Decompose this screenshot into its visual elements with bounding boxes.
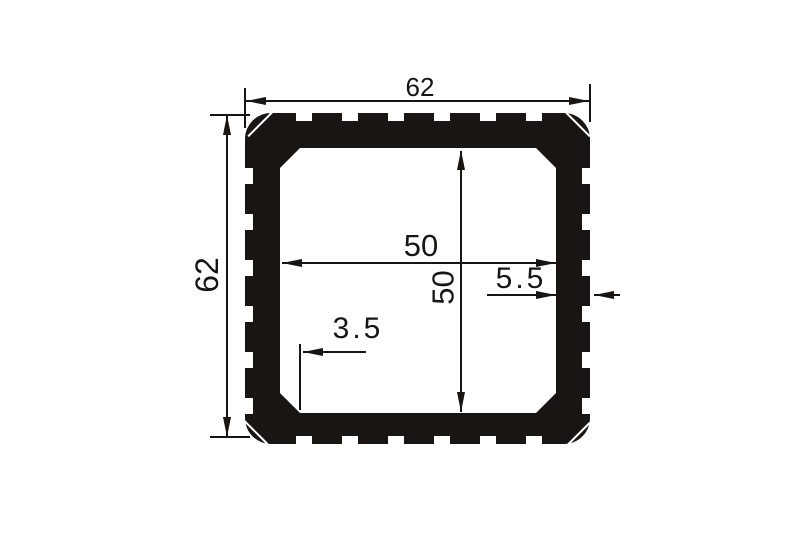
arrow-left-icon	[594, 291, 614, 299]
dim-outer-height-label: 62	[191, 249, 223, 301]
ext-line-top-left	[244, 88, 246, 128]
drawing-canvas: 62 62 50 50 5.5 3.5	[0, 0, 800, 540]
dim-inner-width-label: 50	[390, 230, 452, 261]
arrow-right-icon	[536, 291, 556, 299]
arrow-down-icon	[223, 417, 231, 437]
dim-wall-thickness-label: 5.5	[486, 264, 556, 294]
ext-line-top-right	[589, 84, 591, 122]
dim-outer-width-label: 62	[390, 74, 450, 100]
arrow-up-icon	[457, 150, 465, 170]
dim-inner-chamfer-label: 3.5	[322, 314, 394, 344]
dim-inner-height-label: 50	[428, 262, 459, 314]
dim-line-outer-height	[226, 116, 228, 436]
arrow-left-icon	[282, 259, 302, 267]
arrow-down-icon	[457, 392, 465, 412]
arrow-right-icon	[569, 97, 589, 105]
arrow-left-icon	[303, 348, 323, 356]
ext-line-chamfer	[299, 344, 301, 410]
arrow-up-icon	[223, 115, 231, 135]
arrow-left-icon	[246, 97, 266, 105]
